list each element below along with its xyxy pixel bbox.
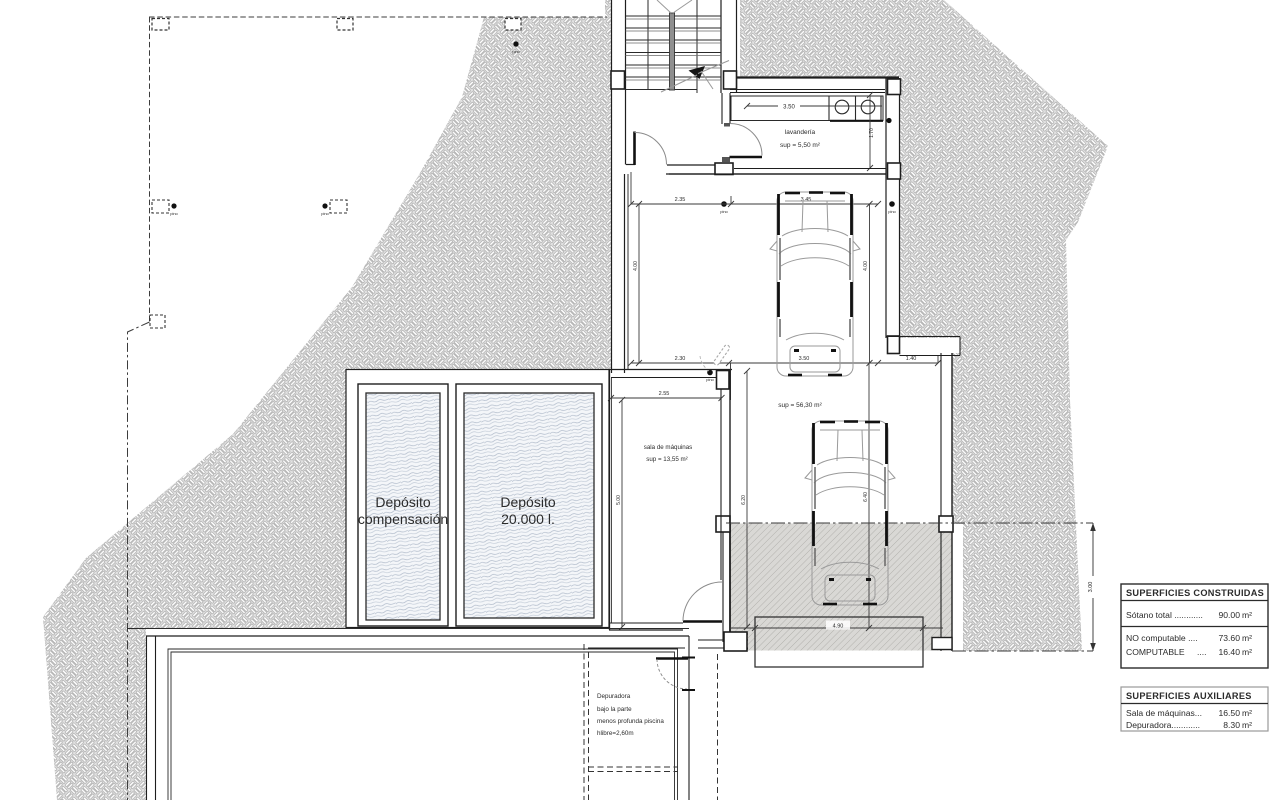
svg-text:Sótano total ............: Sótano total ............ <box>1126 610 1203 620</box>
svg-text:5.00: 5.00 <box>616 495 622 505</box>
svg-text:m²: m² <box>1242 610 1252 620</box>
svg-text:pino: pino <box>888 209 896 214</box>
svg-text:4.00: 4.00 <box>633 261 639 271</box>
svg-text:6.20: 6.20 <box>741 495 747 505</box>
svg-text:compensación: compensación <box>358 511 448 527</box>
svg-text:2.35: 2.35 <box>675 197 686 203</box>
svg-text:4.90: 4.90 <box>833 624 844 630</box>
svg-text:6.40: 6.40 <box>863 492 869 502</box>
svg-text:pino: pino <box>321 211 329 216</box>
svg-text:16.40: 16.40 <box>1218 647 1240 657</box>
svg-text:4.00: 4.00 <box>863 261 869 271</box>
svg-text:SUPERFICIES CONSTRUIDAS: SUPERFICIES CONSTRUIDAS <box>1126 588 1264 598</box>
svg-text:8.30: 8.30 <box>1223 720 1240 730</box>
svg-text:20.000 l.: 20.000 l. <box>501 511 555 527</box>
svg-text:m²: m² <box>1242 647 1252 657</box>
svg-text:3.00: 3.00 <box>1088 582 1094 593</box>
svg-text:Depuradora: Depuradora <box>597 693 631 700</box>
svg-text:pino: pino <box>170 211 178 216</box>
svg-text:2.55: 2.55 <box>659 391 670 397</box>
svg-text:bajo la parte: bajo la parte <box>597 706 632 713</box>
svg-text:Depósito: Depósito <box>500 494 555 510</box>
svg-text:16.50: 16.50 <box>1218 708 1240 718</box>
svg-text:COMPUTABLE: COMPUTABLE <box>1126 647 1185 657</box>
svg-text:90.00: 90.00 <box>1218 610 1240 620</box>
svg-text:2.30: 2.30 <box>675 356 686 362</box>
svg-text:Depuradora............: Depuradora............ <box>1126 720 1200 730</box>
svg-text:3.45: 3.45 <box>801 197 812 203</box>
svg-text:1.70: 1.70 <box>869 128 875 138</box>
svg-text:NO computable ....: NO computable .... <box>1126 633 1198 643</box>
svg-text:m²: m² <box>1242 708 1252 718</box>
svg-text:Sala de máquinas...: Sala de máquinas... <box>1126 708 1202 718</box>
svg-text:sala de máquinas: sala de máquinas <box>644 444 693 451</box>
svg-text:Depósito: Depósito <box>375 494 430 510</box>
svg-text:73.60: 73.60 <box>1218 633 1240 643</box>
svg-text:3.50: 3.50 <box>783 105 795 111</box>
svg-text:lavandería: lavandería <box>785 129 816 136</box>
svg-text:....: .... <box>1197 647 1207 657</box>
svg-text:sup = 5,50 m²: sup = 5,50 m² <box>780 142 821 149</box>
svg-text:1.40: 1.40 <box>906 356 917 362</box>
svg-text:hlibre=2,60m: hlibre=2,60m <box>597 730 634 737</box>
svg-text:pino: pino <box>720 209 728 214</box>
svg-text:m²: m² <box>1242 633 1252 643</box>
svg-text:3.50: 3.50 <box>799 356 810 362</box>
svg-text:menos profunda piscina: menos profunda piscina <box>597 718 664 725</box>
svg-text:SUPERFICIES AUXILIARES: SUPERFICIES AUXILIARES <box>1126 691 1252 701</box>
svg-text:sup = 56,30 m²: sup = 56,30 m² <box>778 402 822 409</box>
svg-text:pino: pino <box>512 49 520 54</box>
svg-text:m²: m² <box>1242 720 1252 730</box>
svg-text:sup = 13,55 m²: sup = 13,55 m² <box>646 456 687 463</box>
